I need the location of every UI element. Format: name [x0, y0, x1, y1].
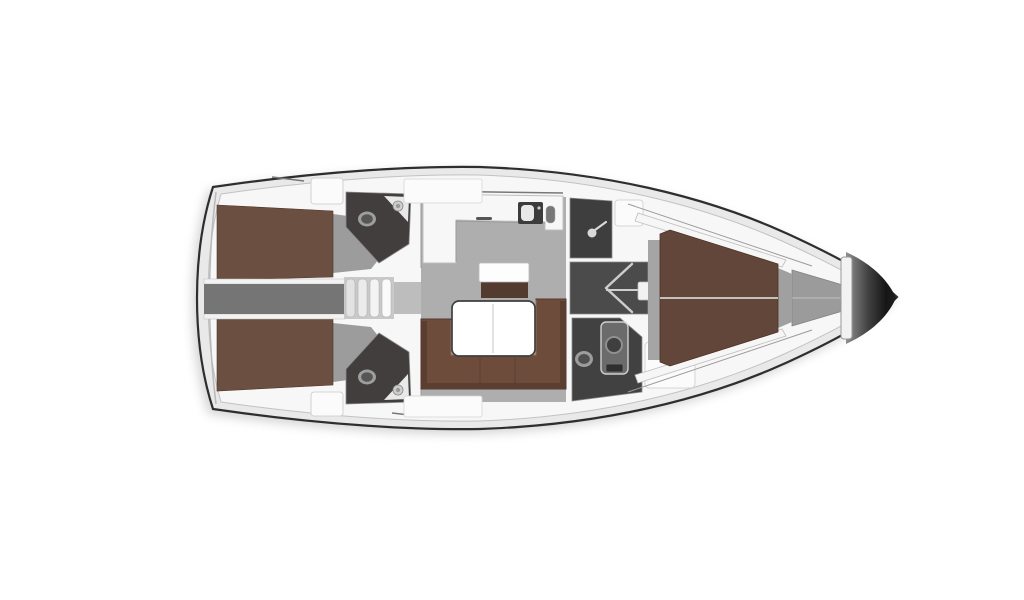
stair-tread	[346, 279, 355, 317]
shower-drain-icon	[606, 337, 622, 353]
vent-grate	[606, 364, 623, 372]
yacht-floor-plan	[0, 0, 1024, 600]
aft-starboard-cabin-bed	[217, 317, 333, 391]
stair-tread	[358, 279, 367, 317]
sink-icon	[396, 204, 400, 208]
toilet-icon	[578, 354, 590, 364]
galley-faucet-dot-icon	[537, 206, 540, 209]
aft-starboard-locker	[311, 392, 343, 416]
stair-tread	[382, 279, 391, 317]
bow-cone	[846, 252, 896, 344]
forward-cabin-floor-wedge	[778, 268, 792, 328]
corridor-wall-top	[204, 279, 345, 284]
shower-stall	[570, 198, 612, 258]
engine-corridor	[204, 284, 345, 314]
companionway-landing	[394, 282, 421, 314]
forward-head	[572, 318, 642, 401]
galley-sink-icon	[521, 205, 534, 221]
aft-port-locker	[311, 178, 343, 204]
galley-faucet-icon	[546, 206, 555, 223]
midship-cabinet-top	[404, 179, 482, 203]
toilet-icon	[361, 214, 373, 224]
sink-icon	[396, 388, 400, 392]
salon-bench-top	[479, 263, 529, 282]
toilet-icon	[361, 372, 373, 382]
floor-plan-figure	[0, 0, 1024, 600]
salon-bench-base	[481, 280, 528, 298]
midship-cabinet-bottom	[404, 396, 482, 417]
bow-bulkhead	[841, 257, 852, 339]
wardrobe-area	[570, 262, 648, 314]
forward-cabin-floor-strip	[648, 240, 660, 360]
stair-tread	[370, 279, 379, 317]
aft-port-cabin-bed	[217, 205, 333, 280]
galley-handle	[476, 217, 492, 220]
corridor-wall-bottom	[204, 314, 345, 319]
